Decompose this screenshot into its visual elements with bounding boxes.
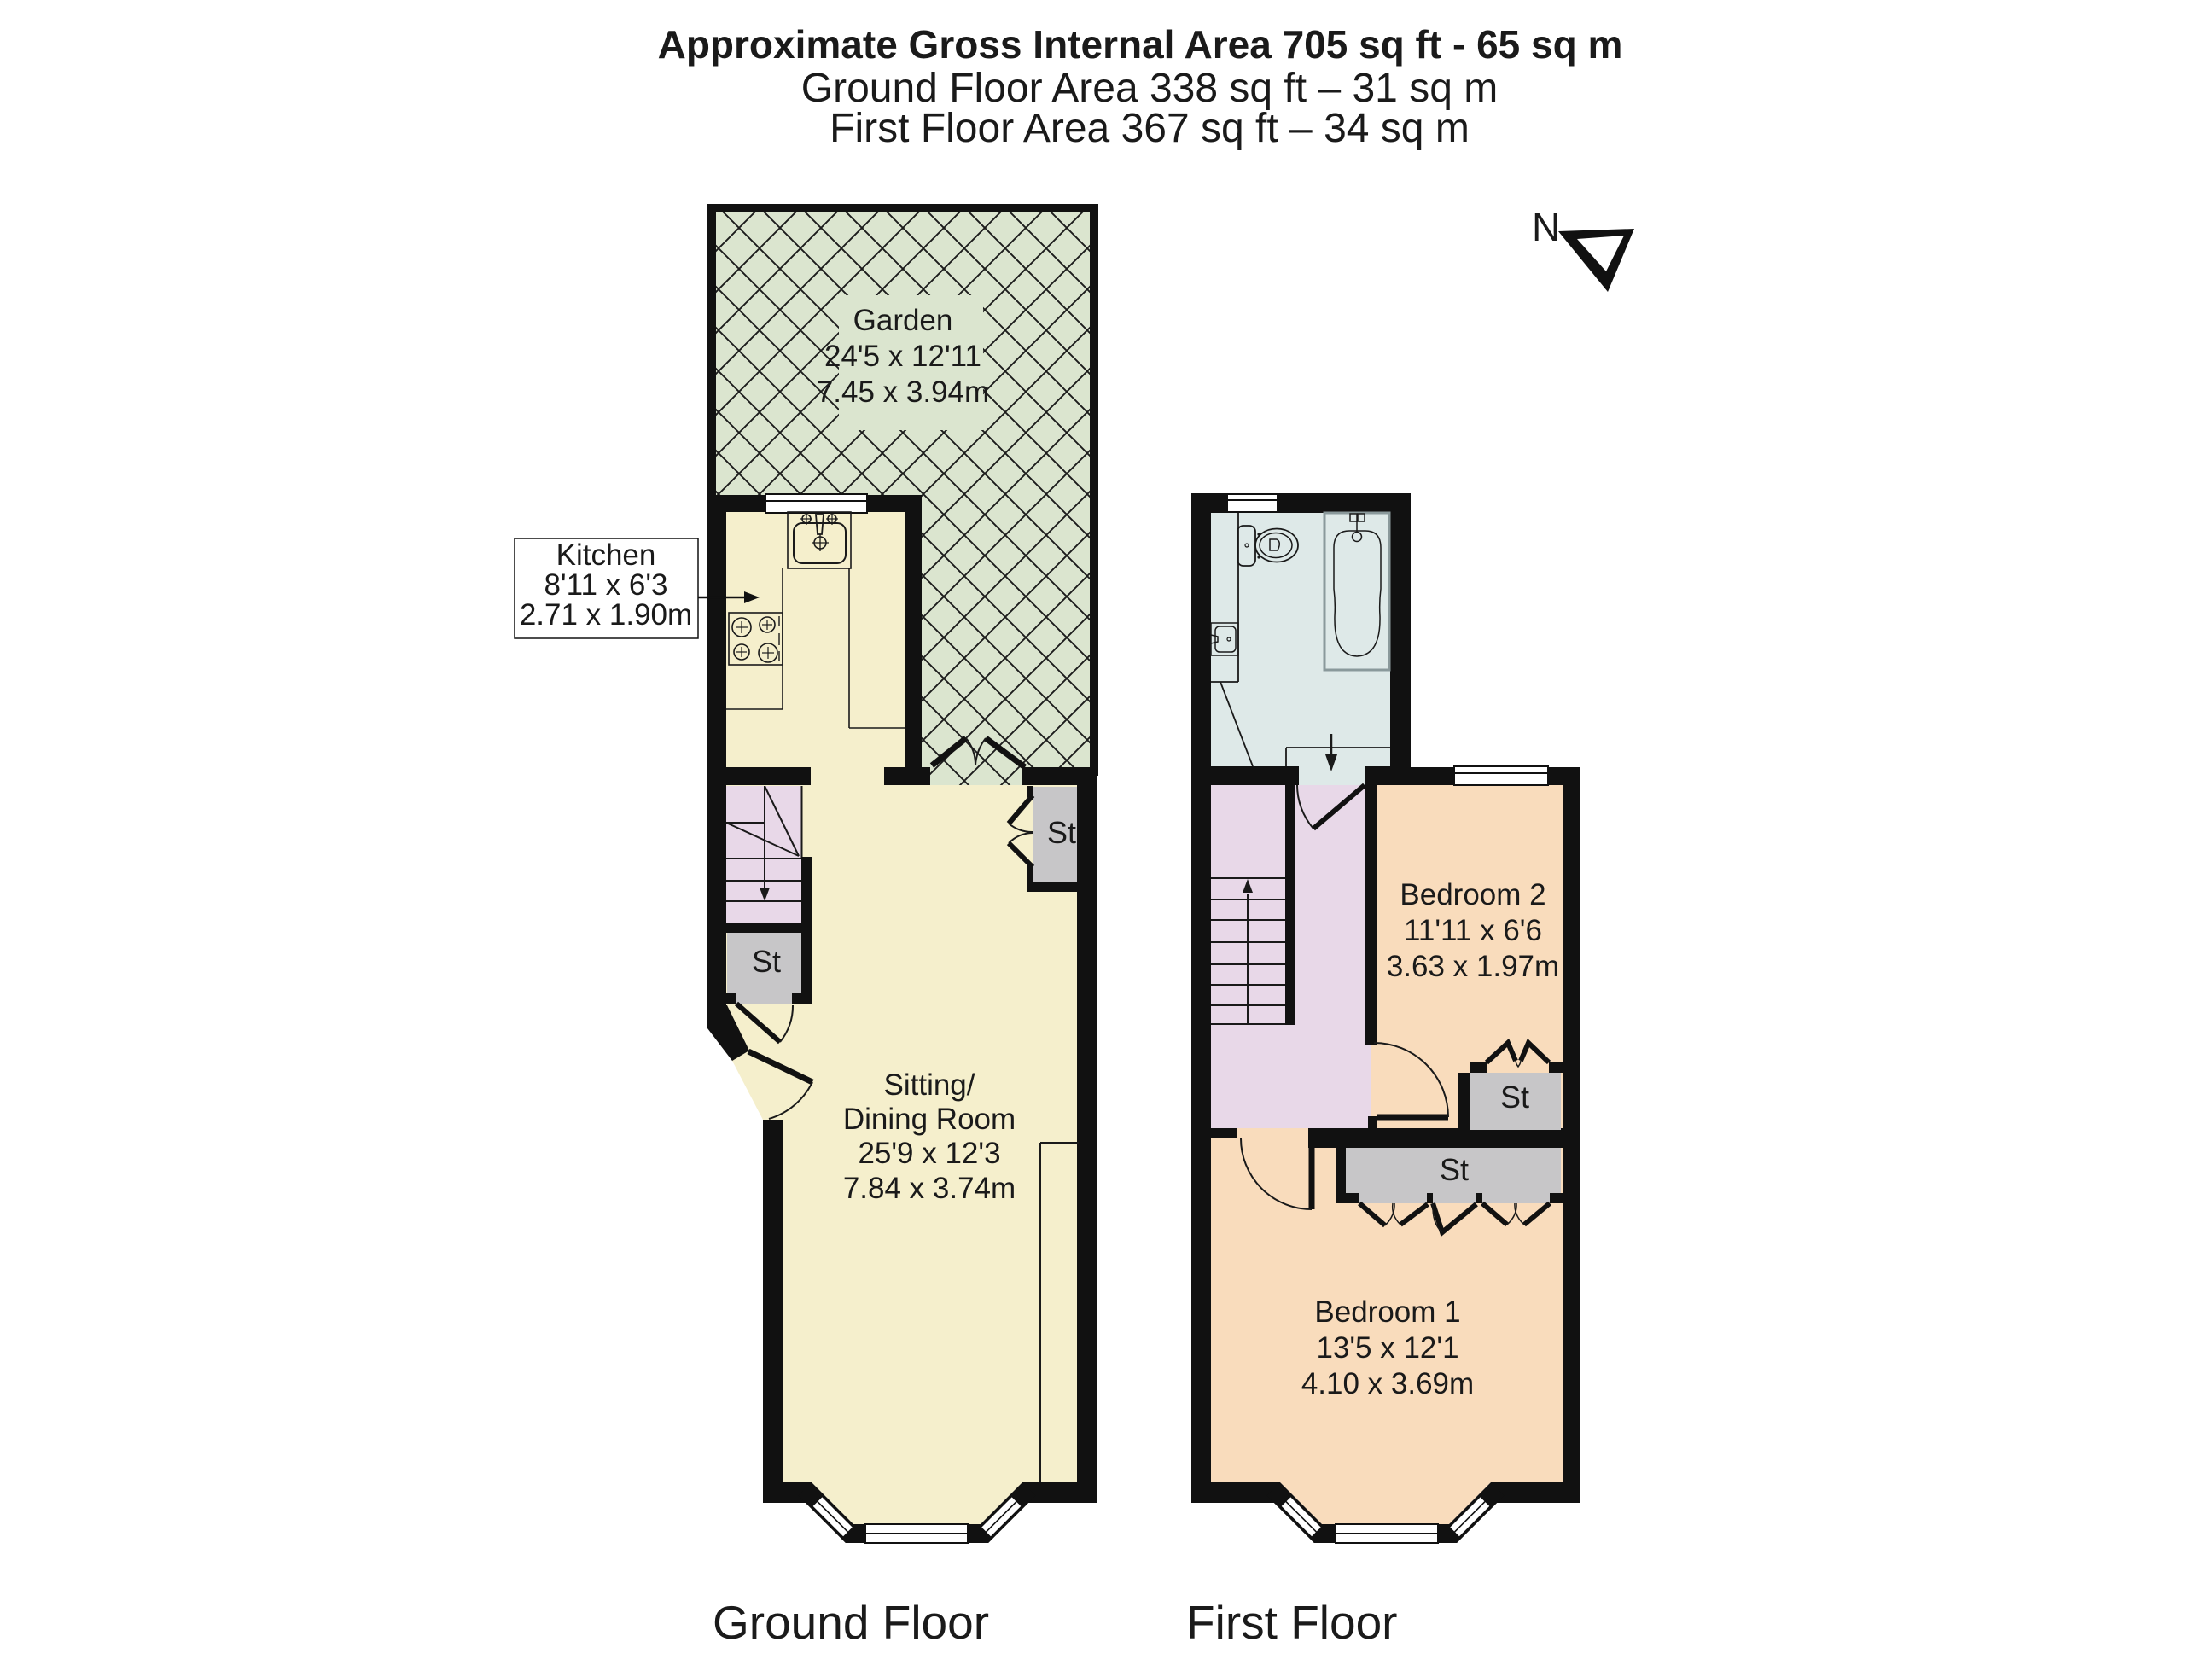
svg-text:Bedroom 1: Bedroom 1 [1314, 1295, 1460, 1329]
svg-text:4.10 x 3.69m: 4.10 x 3.69m [1301, 1367, 1474, 1400]
svg-text:First Floor Area 367 sq ft – 3: First Floor Area 367 sq ft – 34 sq m [829, 106, 1470, 151]
svg-text:Kitchen: Kitchen [556, 538, 656, 572]
svg-text:Ground Floor: Ground Floor [713, 1596, 989, 1649]
svg-text:N: N [1532, 205, 1560, 249]
svg-text:St: St [1047, 815, 1076, 850]
svg-text:Garden: Garden [853, 304, 953, 337]
svg-text:2.71 x 1.90m: 2.71 x 1.90m [520, 598, 692, 632]
svg-text:Ground Floor Area 338 sq ft –: Ground Floor Area 338 sq ft – 31 sq m [801, 66, 1498, 111]
svg-text:Dining Room: Dining Room [843, 1103, 1016, 1136]
svg-text:25'9 x 12'3: 25'9 x 12'3 [858, 1137, 1000, 1170]
svg-text:13'5 x 12'1: 13'5 x 12'1 [1316, 1331, 1458, 1365]
svg-text:Approximate Gross Internal Are: Approximate Gross Internal Area 705 sq f… [658, 22, 1623, 67]
svg-text:24'5 x 12'11: 24'5 x 12'11 [824, 340, 981, 373]
svg-text:St: St [1500, 1080, 1529, 1115]
svg-text:7.45 x 3.94m: 7.45 x 3.94m [817, 375, 989, 409]
svg-text:11'11 x 6'6: 11'11 x 6'6 [1404, 914, 1542, 947]
svg-text:7.84 x 3.74m: 7.84 x 3.74m [843, 1172, 1016, 1205]
svg-text:St: St [752, 944, 781, 979]
svg-text:First Floor: First Floor [1186, 1596, 1398, 1649]
svg-text:Bedroom 2: Bedroom 2 [1400, 878, 1545, 911]
svg-text:8'11 x 6'3: 8'11 x 6'3 [544, 568, 667, 602]
svg-text:St: St [1440, 1152, 1469, 1187]
svg-text:3.63 x 1.97m: 3.63 x 1.97m [1387, 950, 1559, 983]
svg-text:Sitting/: Sitting/ [884, 1068, 975, 1102]
